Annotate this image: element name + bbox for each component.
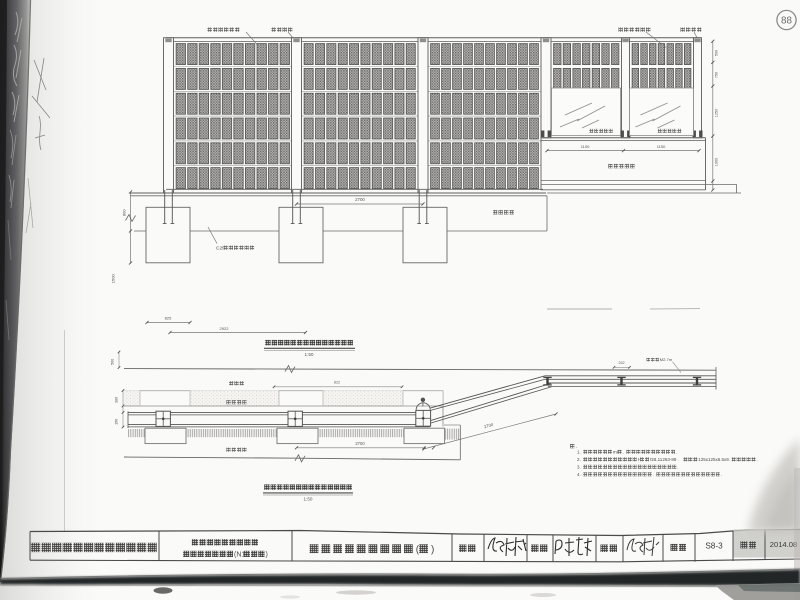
svg-text:S8-3: S8-3 xyxy=(705,542,723,551)
svg-text:): ) xyxy=(431,545,434,556)
svg-text:125x125x6.5x9.: 125x125x6.5x9. xyxy=(698,457,730,462)
svg-text:750: 750 xyxy=(715,72,719,78)
svg-text:300: 300 xyxy=(115,397,119,403)
svg-text:1000: 1000 xyxy=(715,158,719,166)
svg-text:2014.08: 2014.08 xyxy=(770,540,797,549)
svg-text:2700: 2700 xyxy=(355,197,365,202)
svg-text:822: 822 xyxy=(334,381,340,385)
svg-text:1:50: 1:50 xyxy=(304,497,313,502)
svg-text:GB.11263-89 .: GB.11263-89 . xyxy=(650,457,679,462)
svg-text:1250: 1250 xyxy=(715,109,719,117)
svg-text:2700: 2700 xyxy=(355,441,365,446)
svg-text:1:50: 1:50 xyxy=(305,352,314,357)
svg-text:262: 262 xyxy=(618,361,624,365)
svg-text:3.: 3. xyxy=(577,465,581,470)
svg-text:500: 500 xyxy=(111,359,115,365)
svg-text:4.: 4. xyxy=(577,472,581,477)
svg-text:800: 800 xyxy=(122,209,127,216)
svg-text:500: 500 xyxy=(715,50,719,56)
svg-text:1500: 1500 xyxy=(111,274,116,284)
svg-text:88: 88 xyxy=(781,16,792,27)
svg-text:.: . xyxy=(677,465,678,470)
svg-text:.: . xyxy=(623,450,624,455)
svg-text:1100: 1100 xyxy=(581,144,590,149)
svg-text:.: . xyxy=(653,472,654,477)
svg-text:M2.7m: M2.7m xyxy=(660,357,673,362)
svg-text:2922: 2922 xyxy=(220,326,230,331)
svg-text:1150: 1150 xyxy=(657,144,666,149)
svg-text:.: . xyxy=(757,457,758,462)
svg-text:2.: 2. xyxy=(577,457,581,462)
svg-text:150: 150 xyxy=(115,419,119,425)
svg-text:(N1: (N1 xyxy=(234,552,245,559)
svg-text:): ) xyxy=(266,552,268,559)
svg-text:.: . xyxy=(676,450,677,455)
svg-text:1.: 1. xyxy=(577,450,581,455)
svg-text:.: . xyxy=(721,472,722,477)
svg-text:825: 825 xyxy=(165,316,172,321)
